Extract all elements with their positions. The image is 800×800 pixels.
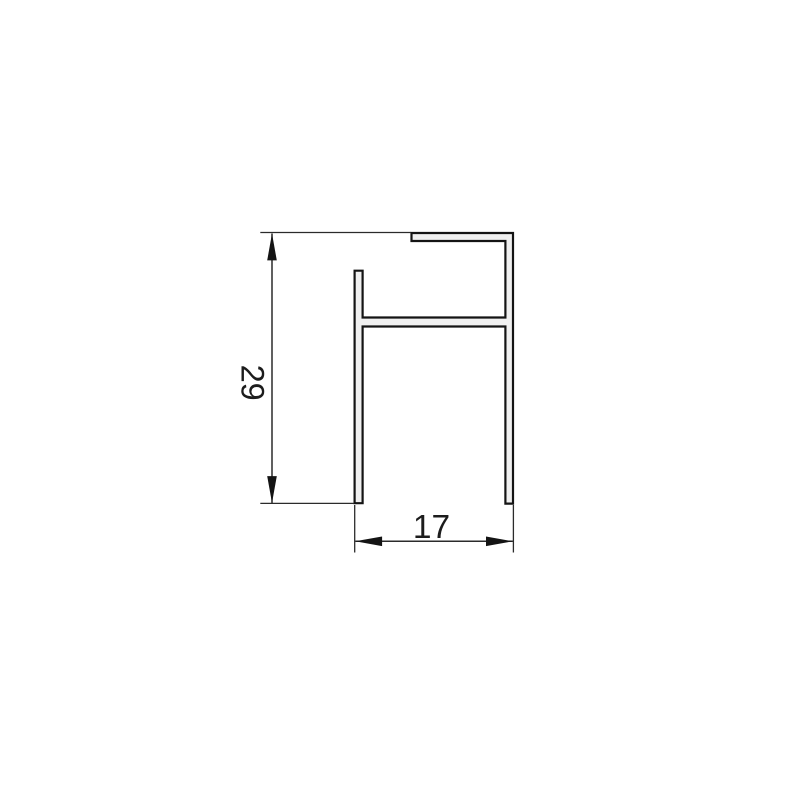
svg-text:29: 29 [235,365,271,401]
svg-text:17: 17 [413,509,450,546]
